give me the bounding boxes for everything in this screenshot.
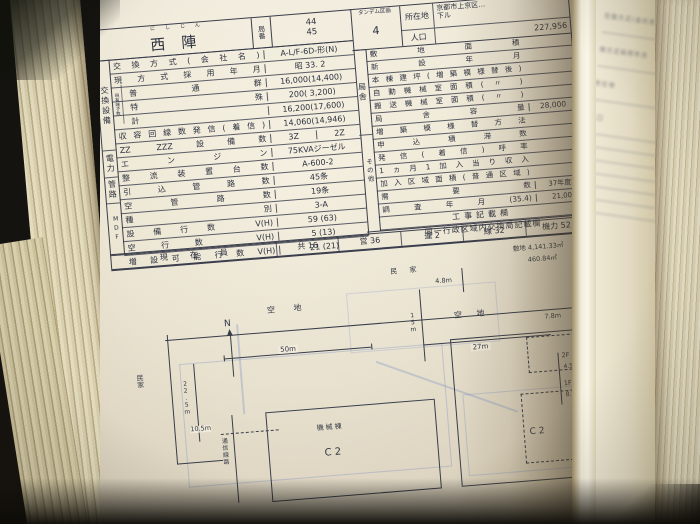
house-label-left: 民家 [136, 374, 145, 389]
gutter-shadow [455, 0, 575, 524]
right-page-rule [596, 210, 658, 224]
right-page-fragment: 現方式採用年月 [599, 44, 658, 65]
right-page-rule [597, 65, 658, 79]
staff-cell: 営 36 [338, 232, 401, 251]
background-corner-top-left [0, 0, 120, 80]
right-page-rule [596, 184, 658, 198]
right-page-rule [596, 99, 658, 113]
right-fore-edge [655, 0, 700, 524]
tandem-cell: タンデム区画 4 [349, 6, 403, 50]
vacant-lot-label: 空 地 [267, 302, 310, 315]
right-page-rule [602, 32, 658, 46]
bureau-number-label: 局番 [251, 17, 272, 48]
gutter-highlight [572, 0, 598, 524]
dimension-50m: 50m [278, 345, 298, 355]
dimension-4-8m: 4.8m [435, 277, 452, 286]
right-page-rule [596, 171, 658, 185]
location-label: 所在地 [400, 4, 435, 31]
book-photo: にしじん 西陣 局番 44 45 交換設備 電力 管路 MDF 現有端子数 [0, 0, 700, 524]
house-label-top: 民 家 [390, 265, 422, 276]
dimension-15m: 15m [408, 312, 417, 333]
right-page-fragment: 人口 [596, 112, 658, 133]
tandem-value: 4 [371, 15, 381, 48]
dimension-22-5m: 22.5m [180, 380, 190, 415]
route-label: 通信線路 [219, 438, 228, 466]
staff-cell: 共 16 [276, 237, 339, 256]
right-page: 交換方式(会社名) 現方式採用年月 所在地 人口 [596, 0, 658, 524]
dimension-tick [224, 355, 225, 361]
building-c2-label: C 2 [324, 446, 341, 459]
equipment-rows: 現有端子数 交換方式(会社名)A-L/F-6D-形(N) 現方式採用年月昭 33… [108, 40, 368, 254]
right-page-rule [596, 133, 658, 147]
equipment-body: 交換設備 電力 管路 MDF 現有端子数 交換方式(会社名)A-L/F-6D-形… [95, 40, 368, 255]
west-boundary-line [167, 335, 178, 465]
right-page-rule [596, 145, 658, 159]
equipment-table: にしじん 西陣 局番 44 45 交換設備 電力 管路 MDF 現有端子数 [92, 9, 369, 256]
right-page-fragment: 交換方式(会社名) [604, 11, 658, 32]
right-page-fragment: 所在地 [596, 78, 658, 99]
staff-cell: 運 2 [400, 227, 463, 246]
right-page-blurred-content: 交換方式(会社名) 現方式採用年月 所在地 人口 [596, 5, 658, 235]
table-shadow-bottom [0, 478, 700, 524]
bureau-number-2: 45 [306, 28, 318, 39]
right-page-rule [596, 197, 658, 211]
right-page-rule [596, 158, 658, 172]
